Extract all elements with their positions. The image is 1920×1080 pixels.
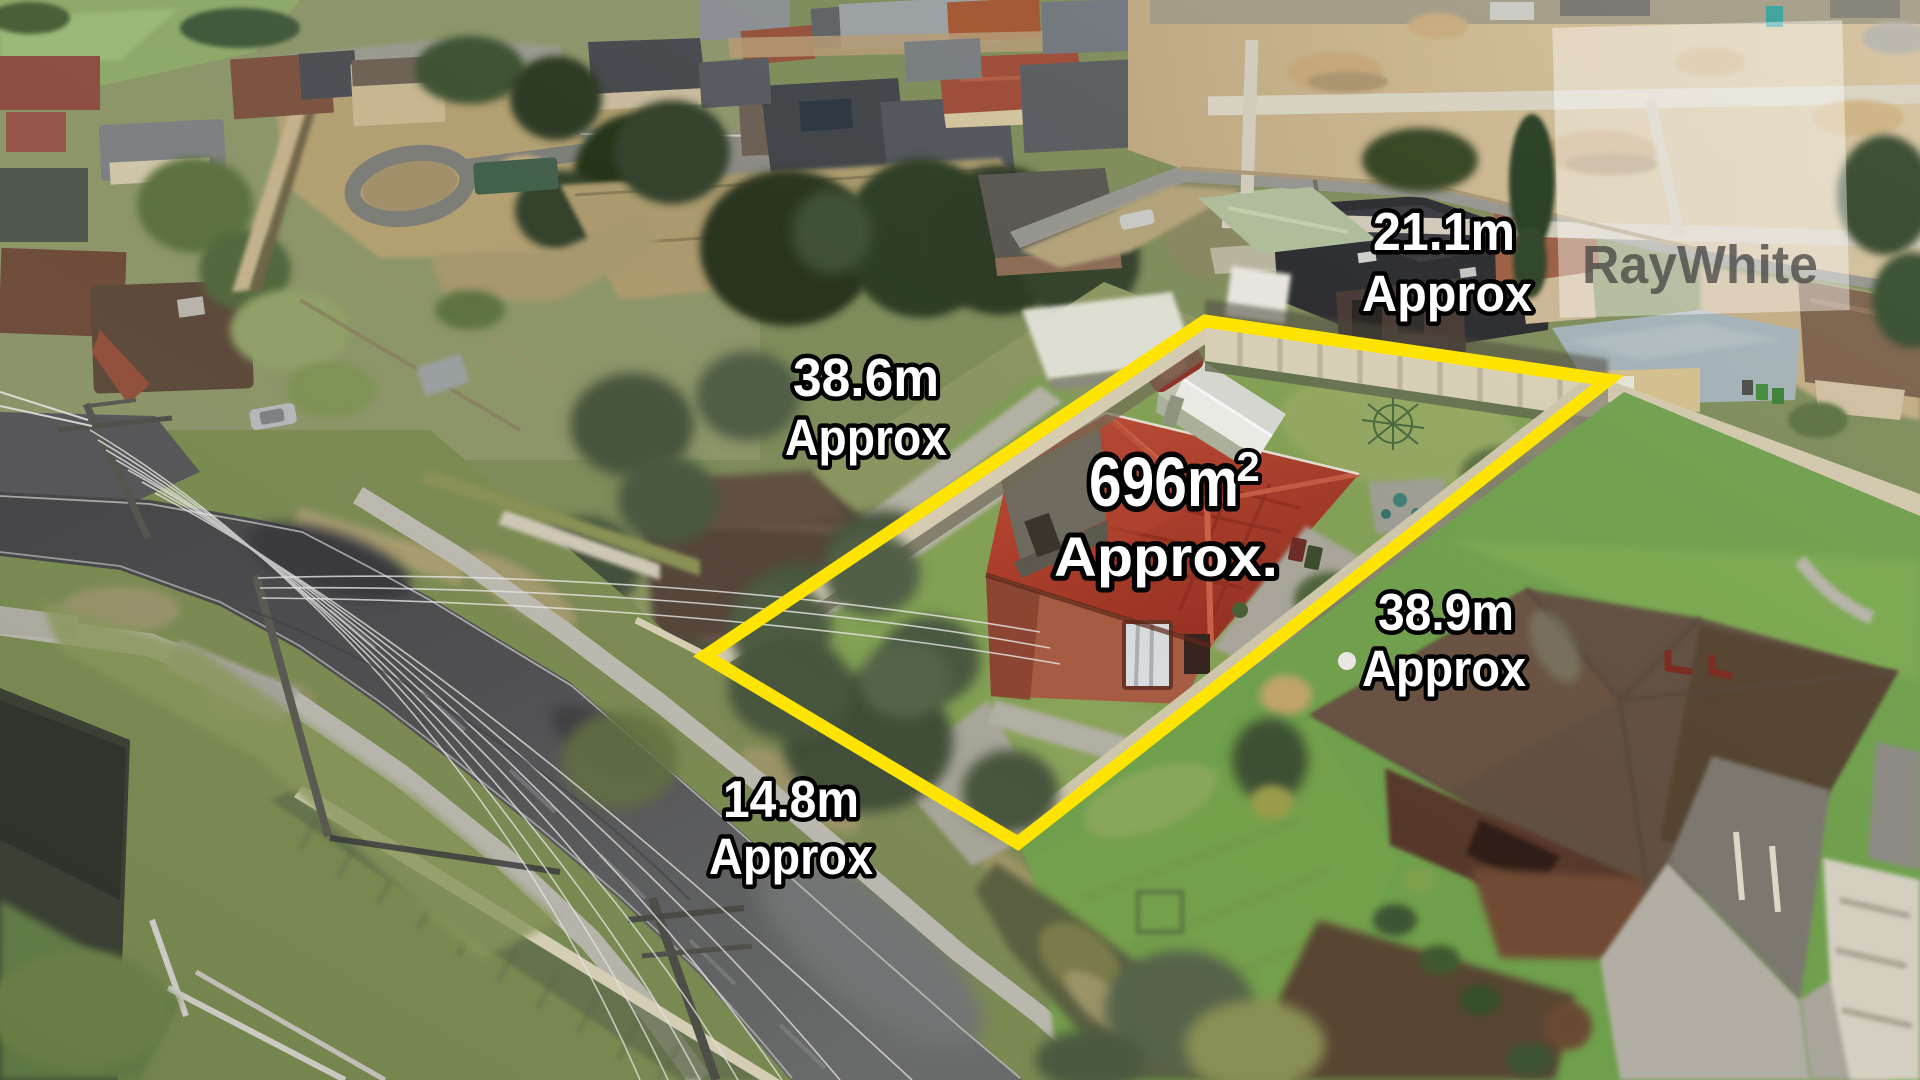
svg-text:14.8m: 14.8m	[723, 771, 859, 829]
svg-text:Approx: Approx	[1362, 640, 1526, 697]
svg-text:RayWhite: RayWhite	[1582, 235, 1818, 295]
svg-text:Approx: Approx	[785, 409, 947, 466]
svg-text:Approx: Approx	[1362, 265, 1532, 322]
svg-text:Approx: Approx	[709, 828, 873, 885]
svg-text:2: 2	[1236, 443, 1259, 490]
svg-text:21.1m: 21.1m	[1373, 202, 1515, 262]
svg-text:38.9m: 38.9m	[1378, 584, 1514, 642]
svg-text:696m: 696m	[1089, 443, 1239, 521]
svg-text:38.6m: 38.6m	[793, 348, 939, 408]
svg-text:Approx.: Approx.	[1054, 525, 1278, 588]
